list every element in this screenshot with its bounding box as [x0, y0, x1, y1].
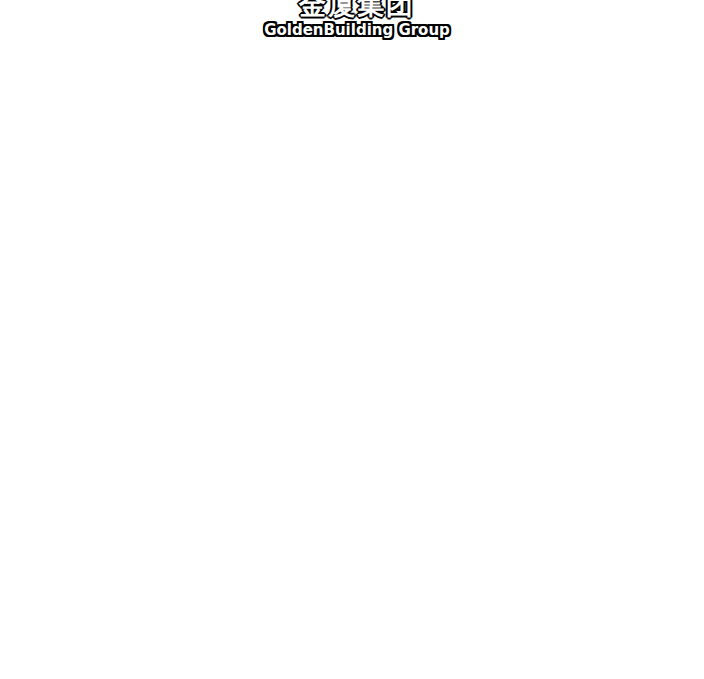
- logo-subtitle-english: GoldenBuilding Group: [264, 23, 450, 38]
- logo[interactable]: 金厦集团 GoldenBuilding Group: [264, 0, 450, 38]
- page: 金厦集团 GoldenBuilding Group: [0, 0, 704, 679]
- logo-title-chinese: 金厦集团: [264, 0, 450, 19]
- site-header: 金厦集团 GoldenBuilding Group: [0, 0, 704, 60]
